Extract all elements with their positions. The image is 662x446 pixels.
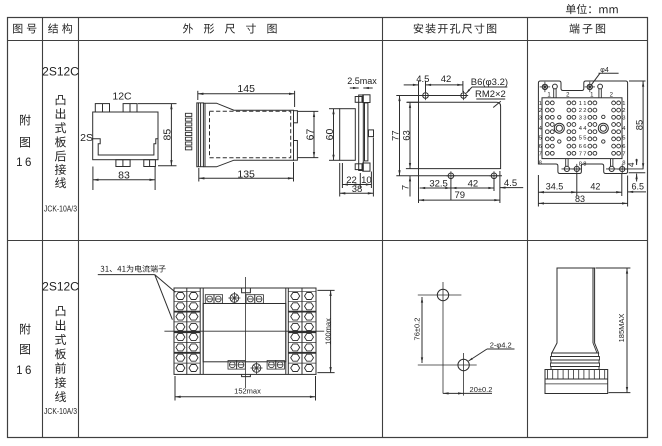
svg-text:16: 16 [16,365,34,377]
svg-text:76±0.2: 76±0.2 [412,318,421,341]
svg-text:85: 85 [634,120,645,131]
svg-text:8: 8 [583,161,586,167]
svg-text:32.5: 32.5 [429,178,448,189]
svg-text:3: 3 [583,115,586,121]
svg-text:6: 6 [583,144,586,150]
svg-text:100max: 100max [324,318,333,345]
svg-text:4: 4 [627,162,636,167]
svg-text:60: 60 [324,129,336,141]
svg-text:3: 3 [539,115,542,121]
svg-text:20±0.2: 20±0.2 [470,385,493,394]
svg-text:83: 83 [118,170,130,182]
svg-text:145: 145 [237,83,255,95]
svg-text:83: 83 [575,194,585,204]
svg-text:12C: 12C [112,90,132,102]
svg-text:7: 7 [539,151,542,157]
svg-text:185MAX: 185MAX [617,314,626,343]
svg-text:6: 6 [539,144,542,150]
svg-text:8: 8 [622,160,625,166]
svg-text:67: 67 [304,129,316,141]
svg-text:2: 2 [583,108,586,114]
svg-text:135: 135 [237,168,255,180]
svg-text:16: 16 [16,157,34,169]
svg-text:6: 6 [622,144,625,150]
svg-text:2: 2 [622,108,625,114]
svg-text:152max: 152max [234,386,261,395]
svg-text:3: 3 [579,115,582,121]
svg-text:3: 3 [622,115,625,121]
svg-text:2S12C: 2S12C [42,279,79,293]
svg-text:1: 1 [579,101,582,107]
svg-text:1: 1 [539,101,542,107]
svg-text:2: 2 [579,108,582,114]
svg-text:2: 2 [539,108,542,114]
svg-text:63: 63 [401,130,412,141]
svg-text:1: 1 [583,101,586,107]
svg-text:7: 7 [583,151,586,157]
svg-text:6: 6 [579,144,582,150]
svg-text:38: 38 [352,184,363,195]
svg-text:5: 5 [583,136,586,142]
svg-text:77: 77 [390,130,401,141]
svg-text:8: 8 [579,161,582,167]
svg-text:8: 8 [539,160,542,166]
svg-text:7: 7 [401,185,412,190]
svg-text:5: 5 [539,136,542,142]
svg-text:6.5: 6.5 [632,181,645,191]
svg-text:42: 42 [468,178,479,189]
svg-text:7: 7 [579,151,582,157]
svg-text:2S: 2S [80,132,93,144]
svg-text:79: 79 [455,190,466,201]
svg-text:2-φ4.2: 2-φ4.2 [490,341,512,350]
svg-text:JCK-10A/3: JCK-10A/3 [44,204,77,213]
svg-text:34.5: 34.5 [546,182,564,192]
svg-text:4.5: 4.5 [504,178,517,189]
svg-text:1: 1 [622,101,625,107]
svg-text:7: 7 [622,151,625,157]
svg-text:2S12C: 2S12C [42,64,79,78]
svg-text:42: 42 [590,182,600,192]
svg-text:JCK-10A/3: JCK-10A/3 [44,407,77,416]
svg-text:42: 42 [441,74,452,85]
svg-text:5: 5 [622,136,625,142]
svg-text:5: 5 [579,136,582,142]
svg-text:85: 85 [162,129,174,141]
svg-text:4.5: 4.5 [416,74,429,85]
svg-text:2.5max: 2.5max [347,76,377,86]
svg-text:10: 10 [361,175,372,186]
